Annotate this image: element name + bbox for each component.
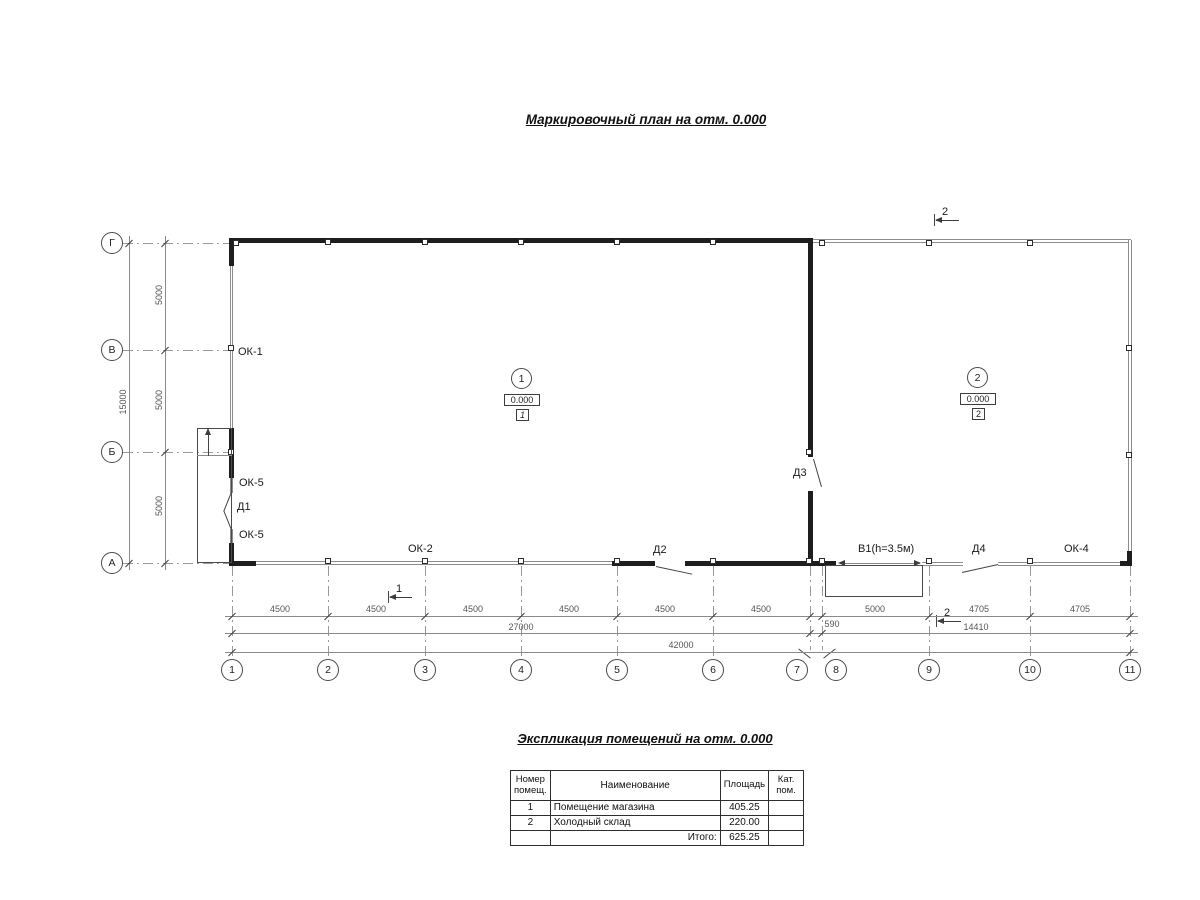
grid-line-col (929, 566, 930, 658)
grid-line-col (617, 566, 618, 658)
table-row: 1 Помещение магазина 405.25 (511, 801, 804, 816)
column-marker (819, 240, 825, 246)
room-schedule-table: Номер помещ. Наименование Площадь Кат. п… (510, 770, 804, 846)
column-marker (1027, 240, 1033, 246)
door-leaf-d3 (813, 459, 822, 487)
wall-right (1128, 240, 1132, 562)
column-marker (926, 558, 932, 564)
cell-num: 1 (511, 801, 551, 816)
dock-outline (825, 565, 923, 597)
grid-col-8: 8 (825, 659, 847, 681)
grid-col-4: 4 (510, 659, 532, 681)
col-header-cat: Кат. пом. (769, 771, 804, 801)
column-marker (422, 239, 428, 245)
cell-empty (511, 831, 551, 846)
dim-line-left-total (129, 236, 130, 570)
column-marker (518, 239, 524, 245)
room1-number: 1 (511, 368, 532, 389)
label-v1: В1(h=3.5м) (858, 543, 914, 555)
column-marker (819, 558, 825, 564)
section1-arrow (389, 594, 396, 600)
grid-col-2: 2 (317, 659, 339, 681)
room1-tag: 1 (516, 409, 529, 421)
window-band-ok2 (256, 561, 612, 565)
dim-4705: 4705 (1055, 604, 1105, 614)
dim-row3 (225, 652, 1138, 653)
room2-elevation: 0.000 (960, 393, 996, 405)
column-marker (614, 558, 620, 564)
dim-42000: 42000 (656, 640, 706, 650)
section2-bottom-arrow (937, 618, 944, 624)
cell-cat (769, 816, 804, 831)
dim-14410: 14410 (951, 622, 1001, 632)
grid-line-col (1030, 566, 1031, 658)
column-marker (1126, 345, 1132, 351)
wall-bottom-corner-left (232, 561, 256, 566)
column-marker (518, 558, 524, 564)
grid-row-a: А (101, 552, 123, 574)
dim-590: 590 (818, 619, 846, 629)
grid-col-3: 3 (414, 659, 436, 681)
total-value: 625.25 (720, 831, 768, 846)
grid-line-col (713, 566, 714, 658)
leader-col7 (798, 648, 810, 658)
label-ok5-upper: ОК-5 (239, 477, 264, 489)
grid-line-col (521, 566, 522, 658)
plan-title: Маркировочный план на отм. 0.000 (446, 112, 846, 127)
col-header-name: Наименование (550, 771, 720, 801)
grid-line-col (822, 566, 823, 650)
grid-row-g: Г (101, 232, 123, 254)
column-marker (614, 239, 620, 245)
table-row: 2 Холодный склад 220.00 (511, 816, 804, 831)
column-marker (710, 558, 716, 564)
cell-area: 220.00 (720, 816, 768, 831)
table-total-row: Итого: 625.25 (511, 831, 804, 846)
section2-bottom-label: 2 (944, 607, 950, 619)
cell-area: 405.25 (720, 801, 768, 816)
grid-line-col (328, 566, 329, 658)
dim-4500: 4500 (351, 604, 401, 614)
cell-num: 2 (511, 816, 551, 831)
table-title: Экспликация помещений на отм. 0.000 (500, 731, 790, 746)
label-ok2: ОК-2 (408, 543, 433, 555)
dim-4500: 4500 (544, 604, 594, 614)
dim-4500: 4500 (640, 604, 690, 614)
column-marker (1126, 452, 1132, 458)
dim-4500: 4500 (255, 604, 305, 614)
drawing-sheet: Маркировочный план на отм. 0.000 Г В Б А… (0, 0, 1200, 900)
column-marker (1027, 558, 1033, 564)
v1-opening-dim (840, 563, 920, 564)
dim-4500: 4500 (736, 604, 786, 614)
cell-name: Помещение магазина (550, 801, 720, 816)
ramp-line (197, 455, 232, 456)
grid-col-10: 10 (1019, 659, 1041, 681)
grid-line-col (810, 566, 811, 650)
grid-col-5: 5 (606, 659, 628, 681)
grid-line-col (1130, 566, 1131, 658)
column-marker (806, 558, 812, 564)
dim-5000: 5000 (850, 604, 900, 614)
column-marker (422, 558, 428, 564)
grid-col-11: 11 (1119, 659, 1141, 681)
section2-top-arrow (935, 217, 942, 223)
leader-col8 (823, 648, 835, 658)
column-marker (710, 239, 716, 245)
label-ok1: ОК-1 (238, 346, 263, 358)
column-marker (228, 345, 234, 351)
ramp-outline (197, 428, 232, 563)
grid-line-row-v (123, 350, 231, 351)
grid-line-row-g (123, 243, 231, 244)
room2-number: 2 (967, 367, 988, 388)
column-marker (806, 449, 812, 455)
wall-top-room2 (812, 239, 1131, 243)
grid-line-col (232, 566, 233, 658)
grid-col-6: 6 (702, 659, 724, 681)
total-label: Итого: (550, 831, 720, 846)
dim-left-1: 5000 (154, 273, 164, 317)
room2-tag: 2 (972, 408, 985, 420)
grid-row-b: Б (101, 441, 123, 463)
column-marker (233, 240, 239, 246)
label-d4: Д4 (972, 543, 986, 555)
door-leaf-d2 (656, 566, 692, 575)
cell-empty (769, 831, 804, 846)
dim-row2 (225, 633, 1138, 634)
dim-left-3: 5000 (154, 484, 164, 528)
col-header-area: Площадь (720, 771, 768, 801)
label-ok4: ОК-4 (1064, 543, 1089, 555)
wall-dividing-upper (808, 238, 813, 457)
grid-col-9: 9 (918, 659, 940, 681)
window-band-ok4 (998, 562, 1120, 566)
label-d1: Д1 (237, 501, 251, 513)
dim-4500: 4500 (448, 604, 498, 614)
dim-4705: 4705 (954, 604, 1004, 614)
v1-arrow-right (914, 560, 921, 566)
grid-row-v: В (101, 339, 123, 361)
label-d3: Д3 (793, 467, 807, 479)
label-ok5-lower: ОК-5 (239, 529, 264, 541)
ramp-arrow-shaft (208, 434, 209, 456)
grid-col-1: 1 (221, 659, 243, 681)
door-leaf-d4 (962, 564, 998, 573)
ramp-arrow-head (205, 428, 211, 435)
dim-line-left (165, 236, 166, 570)
wall-dividing-lower (808, 491, 813, 566)
dim-row1 (225, 616, 1138, 617)
label-d2: Д2 (653, 544, 667, 556)
grid-line-col (425, 566, 426, 658)
section1-label: 1 (396, 583, 402, 595)
column-marker (325, 239, 331, 245)
cell-cat (769, 801, 804, 816)
column-marker (926, 240, 932, 246)
column-marker (325, 558, 331, 564)
section2-top-label: 2 (942, 206, 948, 218)
v1-arrow-left (838, 560, 845, 566)
col-header-num: Номер помещ. (511, 771, 551, 801)
room1-elevation: 0.000 (504, 394, 540, 406)
dim-left-total: 15000 (118, 380, 128, 424)
grid-col-7: 7 (786, 659, 808, 681)
wall-bottom-seg2 (685, 561, 812, 566)
cell-name: Холодный склад (550, 816, 720, 831)
grid-line-row-a (123, 563, 231, 564)
dim-left-2: 5000 (154, 378, 164, 422)
dim-27000: 27000 (496, 622, 546, 632)
